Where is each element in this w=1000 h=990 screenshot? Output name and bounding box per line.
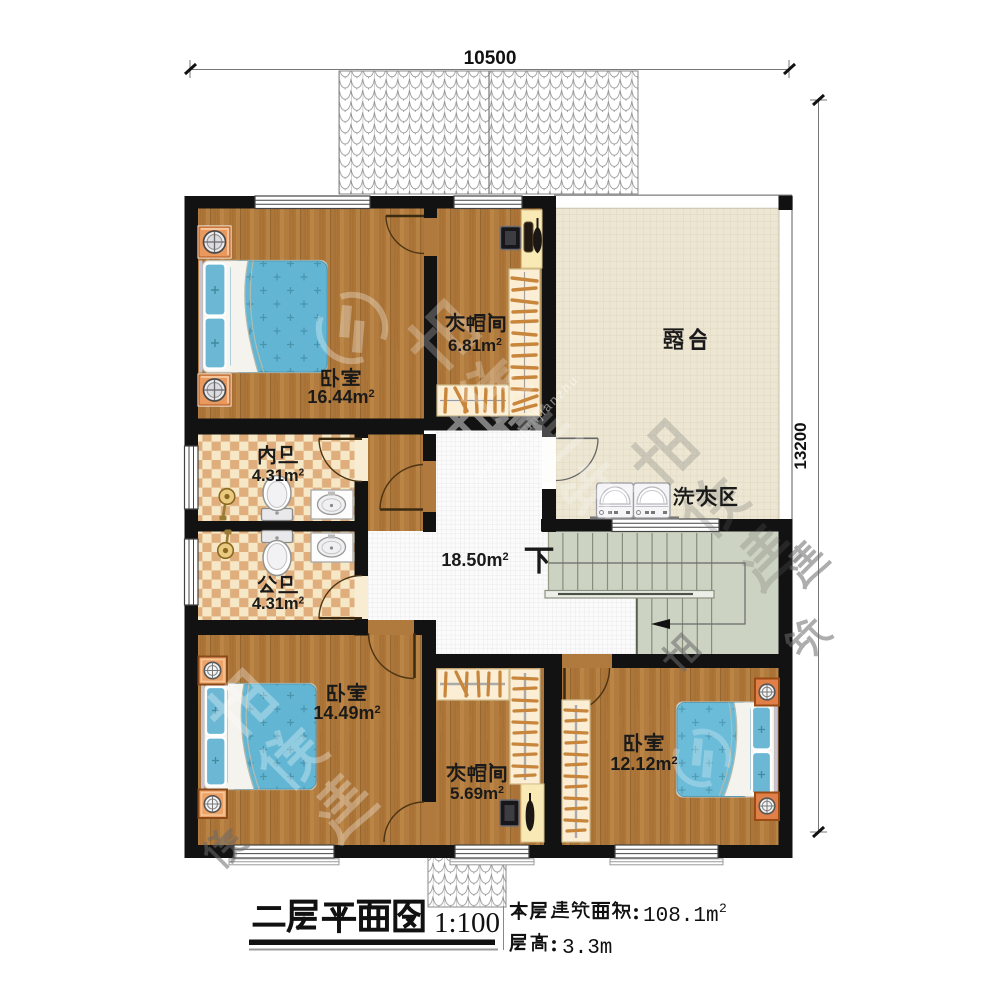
svg-text:108.1m: 108.1m	[643, 905, 719, 928]
svg-text:3.3m: 3.3m	[562, 937, 612, 960]
svg-text:4.31m2: 4.31m2	[252, 595, 305, 613]
svg-text:13200: 13200	[791, 422, 810, 469]
svg-text:4.31m2: 4.31m2	[252, 467, 305, 485]
svg-text:14.49m2: 14.49m2	[313, 703, 380, 723]
svg-text:16.44m2: 16.44m2	[307, 387, 374, 407]
svg-text:12.12m2: 12.12m2	[610, 754, 677, 774]
svg-text:1:100: 1:100	[434, 907, 500, 939]
svg-text:6.81m2: 6.81m2	[448, 336, 502, 355]
svg-text:18.50m2: 18.50m2	[441, 550, 508, 570]
svg-text:5.69m2: 5.69m2	[450, 784, 504, 803]
svg-text:10500: 10500	[464, 48, 517, 69]
svg-text:2: 2	[719, 901, 727, 916]
